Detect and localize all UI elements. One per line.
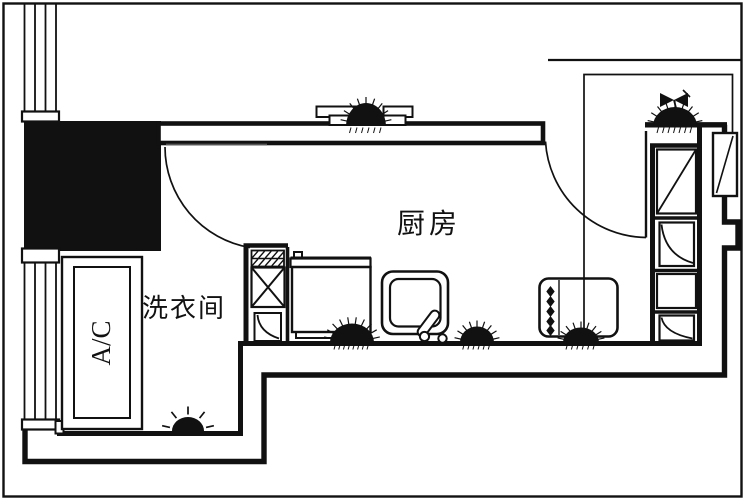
exterior-platform-box [713, 133, 737, 196]
floor-plan-drawing [0, 0, 745, 501]
door-swing-arc [546, 142, 647, 238]
cabinet-plain-cell [657, 274, 696, 308]
left-window-top [22, 5, 59, 122]
top-wall-band [159, 124, 544, 144]
cabinet-door-cell [660, 223, 695, 267]
kitchen-sink [382, 272, 448, 343]
laundry-door [165, 145, 267, 248]
mid-cabinet-column [244, 246, 289, 342]
laundry-room-label: 洗衣间 [142, 288, 226, 325]
door-swing-arc [165, 147, 250, 248]
kitchen-door [546, 131, 647, 238]
scribble-marks [162, 97, 702, 431]
left-window-bottom [22, 249, 64, 434]
ac-unit-label: A/C [86, 298, 118, 388]
solid-wall-block [24, 121, 161, 251]
right-cabinet-column [650, 145, 699, 343]
floor-plan-canvas: 厨房 洗衣间 A/C [0, 0, 745, 501]
kitchen-room-label: 厨房 [397, 202, 461, 242]
cabinet-door-cell [660, 316, 695, 341]
